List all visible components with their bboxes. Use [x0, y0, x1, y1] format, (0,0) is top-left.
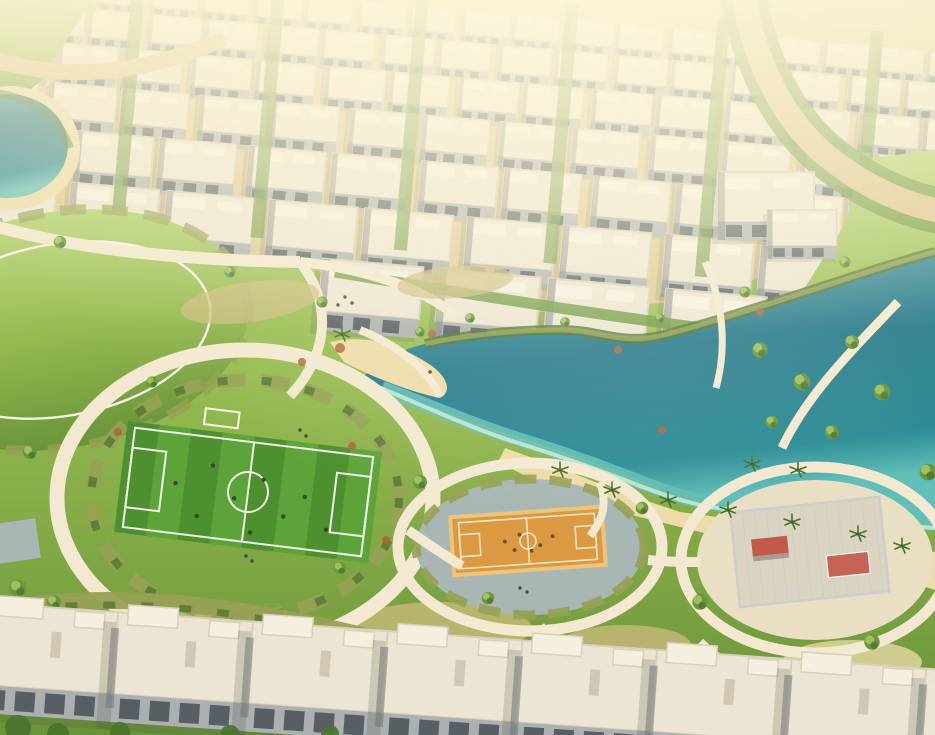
aerial-render-container	[0, 0, 935, 735]
scene-svg	[0, 0, 935, 735]
sun-glow	[0, 0, 935, 735]
